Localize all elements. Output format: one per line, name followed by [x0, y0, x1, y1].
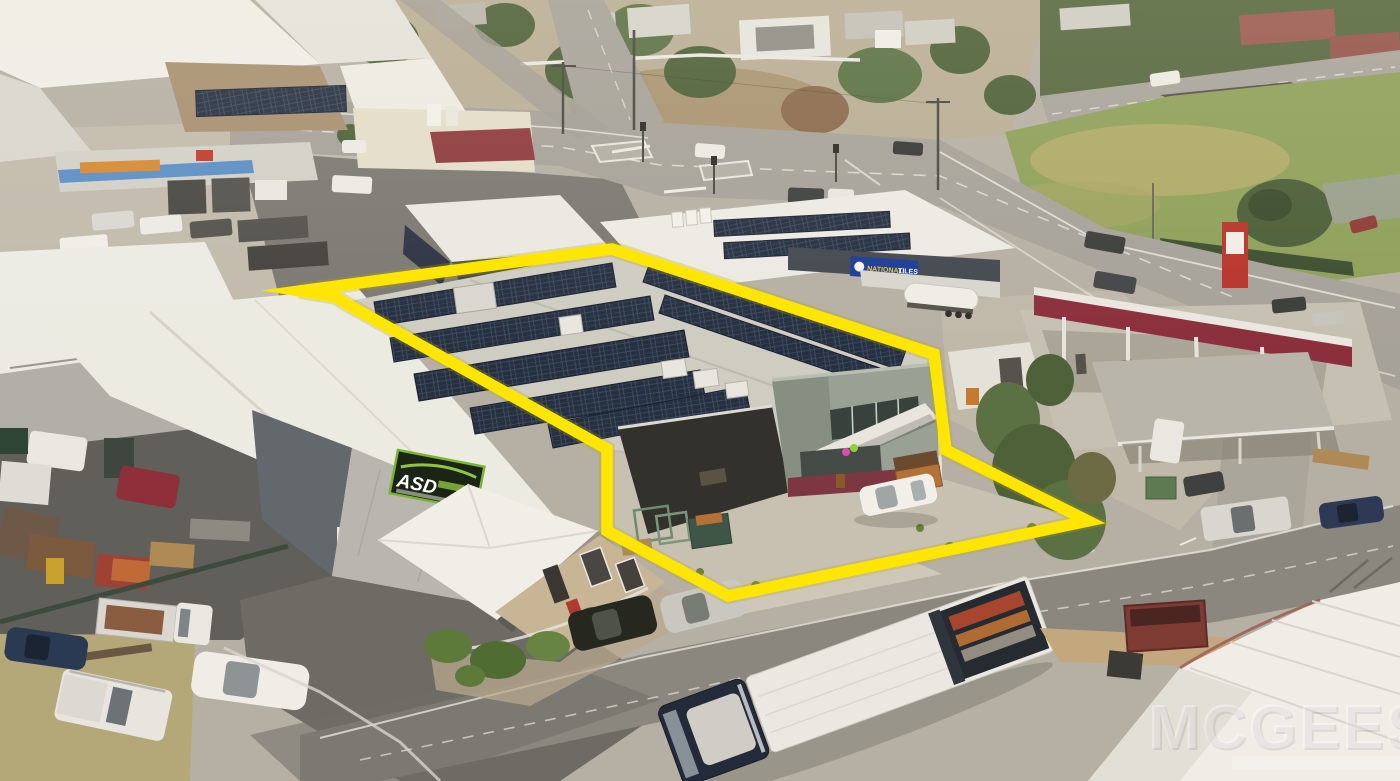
photo-wash-overlay	[0, 0, 1400, 781]
watermark: MCGEES MCGEES	[1148, 693, 1400, 769]
watermark-subline	[1232, 756, 1400, 769]
watermark-text: MCGEES	[1148, 693, 1400, 762]
aerial-photo-canvas: ASD NATIONAL TILES	[0, 0, 1400, 781]
aerial-photo: ASD NATIONAL TILES	[0, 0, 1400, 781]
